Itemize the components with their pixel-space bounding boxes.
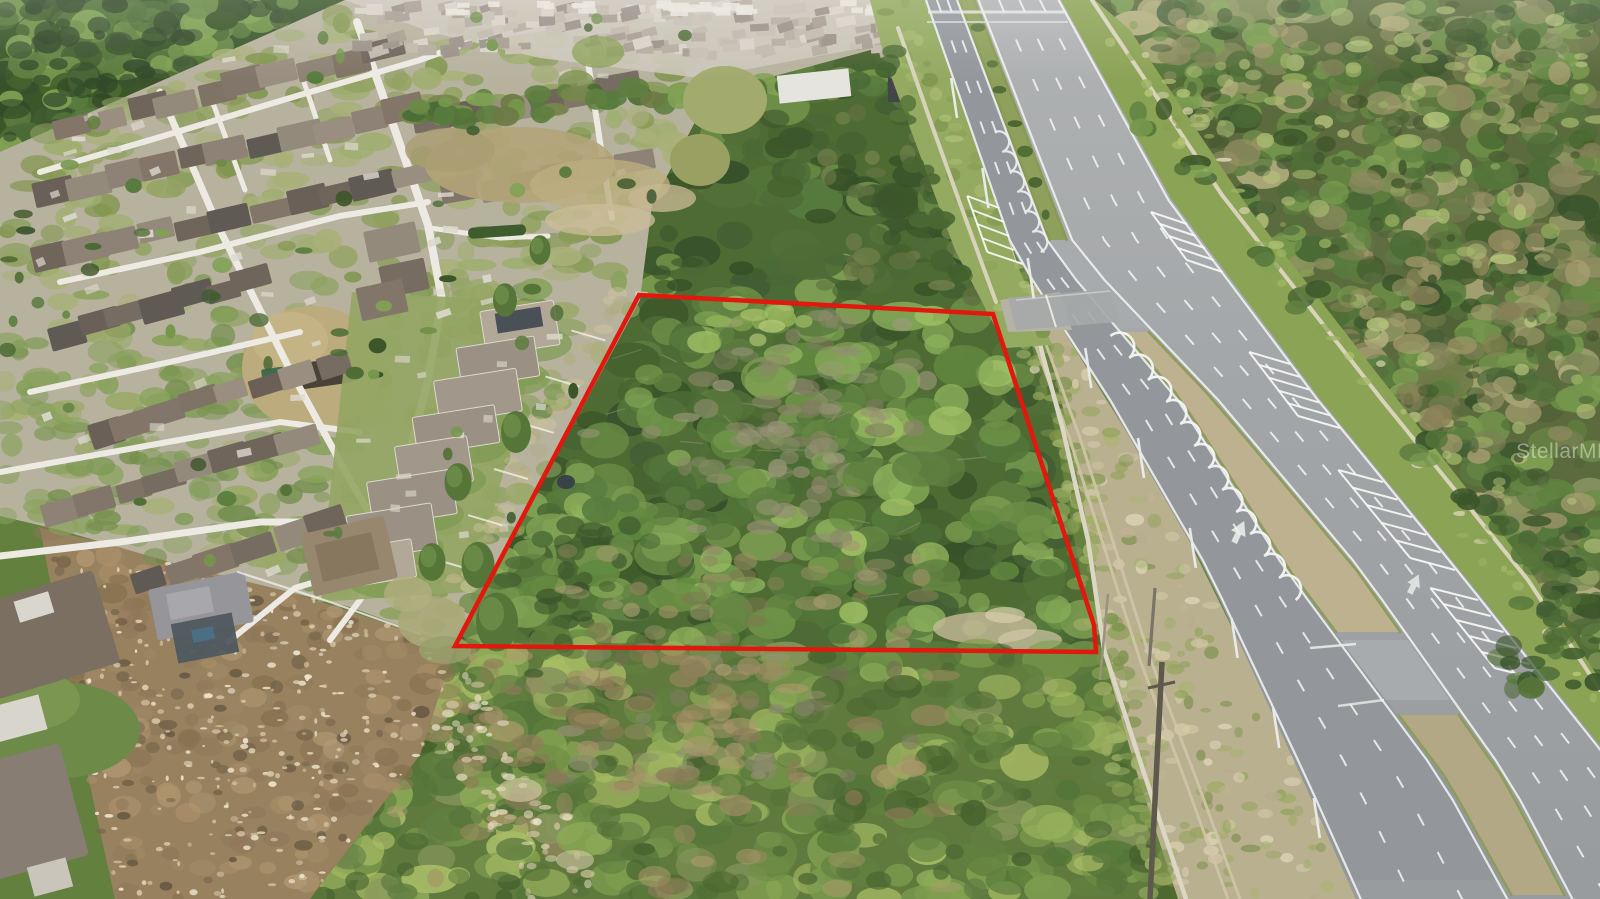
svg-text:StellarMLS: StellarMLS bbox=[1516, 440, 1600, 463]
